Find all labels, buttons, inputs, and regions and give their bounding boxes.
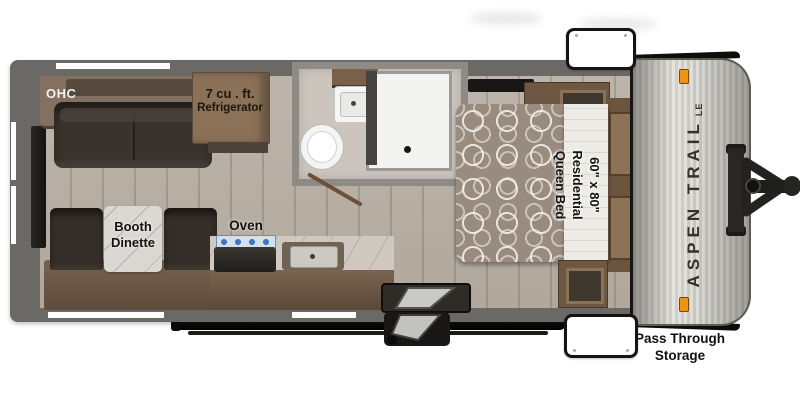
entry-steps xyxy=(376,282,476,352)
rear-tv xyxy=(31,126,46,248)
refrigerator-label-line1: 7 cu . ft. xyxy=(192,86,268,101)
window xyxy=(56,63,170,69)
rear-window xyxy=(11,122,16,180)
overhead-cabinet-top xyxy=(66,79,212,96)
queen-bed-label: 60" x 80" Residential Queen Bed xyxy=(540,107,616,263)
clearance-light xyxy=(679,69,689,84)
pass-through-storage-label: Pass Through Storage xyxy=(628,330,732,364)
window xyxy=(48,312,164,318)
kitchen-sink-drain xyxy=(310,254,315,259)
shower-drain xyxy=(404,146,411,153)
pass-through-storage-door xyxy=(564,314,638,358)
pass-label-line2: Storage xyxy=(628,347,732,364)
brand-name: ASPEN TRAIL xyxy=(684,119,703,287)
booth-dinette-label: Booth Dinette xyxy=(95,219,171,251)
screw xyxy=(575,34,578,37)
sofa xyxy=(54,102,212,168)
floorplan-canvas: OHC 7 cu . ft. Refrigerator Booth Dinett… xyxy=(0,0,800,400)
front-storage-door-top xyxy=(566,28,636,70)
screw xyxy=(573,349,576,352)
booth-label-line1: Booth xyxy=(95,219,171,235)
awning-rail xyxy=(188,331,548,335)
screw xyxy=(624,34,627,37)
toilet-lid xyxy=(307,131,337,163)
shower-frame xyxy=(366,71,377,165)
wardrobe-bottom-glass xyxy=(566,268,604,304)
a-frame-hitch xyxy=(726,140,800,240)
bathroom-sink-drain xyxy=(351,101,356,106)
ohc-label: OHC xyxy=(46,86,76,101)
bed-label-line1: 60" x 80" xyxy=(587,107,604,263)
rear-window xyxy=(11,186,16,244)
refrigerator-vent xyxy=(208,142,268,153)
brand-logo: ASPEN TRAILLE xyxy=(684,90,714,300)
oven-label: Oven xyxy=(222,218,270,233)
refrigerator-label: 7 cu . ft. Refrigerator xyxy=(192,86,268,116)
window xyxy=(292,312,356,318)
brand-badge: LE xyxy=(694,103,704,117)
shower xyxy=(366,71,452,171)
bed-label-line3: Queen Bed xyxy=(553,107,570,263)
roof-shadow xyxy=(470,12,542,25)
oven xyxy=(214,247,276,272)
kitchen-cabinets xyxy=(210,270,394,310)
refrigerator-label-line2: Refrigerator xyxy=(192,101,268,116)
booth-label-line2: Dinette xyxy=(95,235,171,251)
bed-label-line2: Residential xyxy=(570,107,587,263)
pass-label-line1: Pass Through xyxy=(628,330,732,347)
